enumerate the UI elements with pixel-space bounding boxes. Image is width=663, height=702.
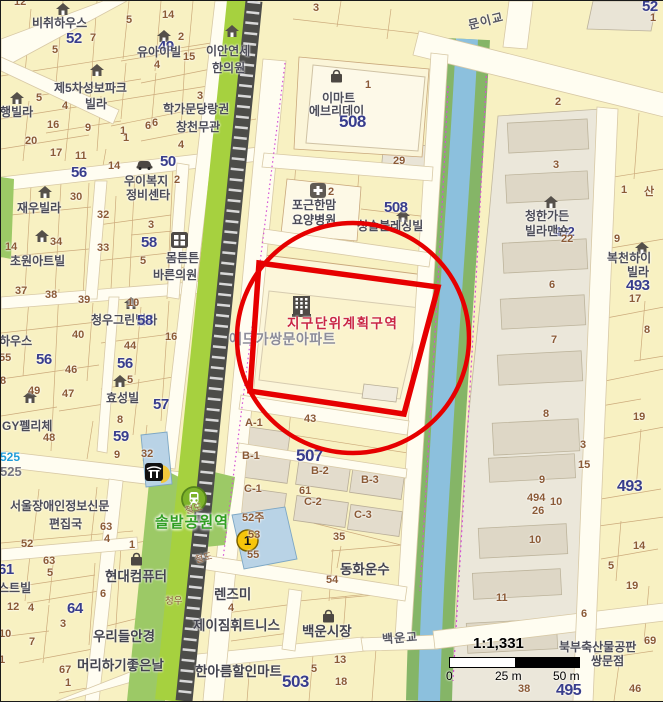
annotation-layer [1, 1, 663, 701]
scale-track [449, 657, 580, 668]
map-canvas[interactable]: 1 12비취하우스5275514249유아이빌415이안연세한의원3제5차성보파… [0, 0, 663, 702]
scale-ratio: 1:1,331 [473, 635, 524, 652]
highlight-circle [237, 223, 469, 453]
scale-tick-0: 0 [446, 669, 453, 683]
highlight-parcel-outline [250, 263, 438, 414]
scale-tick-25m: 25 m [495, 669, 522, 683]
scale-tick-50m: 50 m [553, 669, 580, 683]
scale-track-black [515, 658, 580, 667]
